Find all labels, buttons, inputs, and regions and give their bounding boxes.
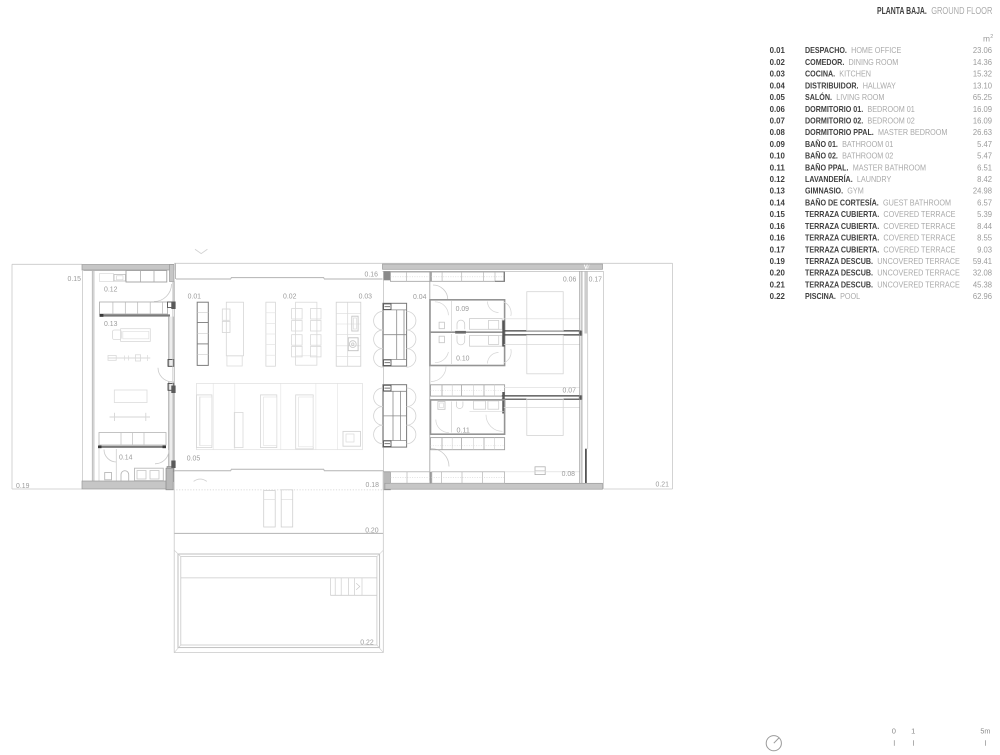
svg-text:0.11: 0.11 xyxy=(457,425,470,434)
svg-text:BATHROOM 01: BATHROOM 01 xyxy=(842,139,893,149)
svg-text:0.20: 0.20 xyxy=(770,268,786,278)
svg-text:6.57: 6.57 xyxy=(977,197,992,207)
svg-text:2: 2 xyxy=(990,34,993,40)
svg-text:BAÑO 02.: BAÑO 02. xyxy=(805,151,838,161)
svg-text:UNCOVERED TERRACE: UNCOVERED TERRACE xyxy=(877,279,960,289)
svg-text:COCINA.: COCINA. xyxy=(805,69,835,79)
svg-text:m: m xyxy=(983,34,990,43)
svg-text:KITCHEN: KITCHEN xyxy=(839,69,871,79)
svg-text:0.07: 0.07 xyxy=(563,386,576,395)
svg-text:PLANTA BAJA.: PLANTA BAJA. xyxy=(877,6,927,17)
svg-text:8.44: 8.44 xyxy=(977,221,992,231)
svg-text:TERRAZA CUBIERTA.: TERRAZA CUBIERTA. xyxy=(805,244,879,254)
svg-text:0.14: 0.14 xyxy=(770,197,786,207)
svg-text:0.06: 0.06 xyxy=(563,274,576,283)
svg-text:0.15: 0.15 xyxy=(770,209,786,219)
svg-text:0.16: 0.16 xyxy=(365,270,378,279)
svg-text:LAVANDERÍA.: LAVANDERÍA. xyxy=(805,173,853,184)
svg-text:0.19: 0.19 xyxy=(16,481,29,490)
svg-text:16.09: 16.09 xyxy=(973,104,992,114)
svg-text:5.47: 5.47 xyxy=(977,139,992,149)
svg-text:8.55: 8.55 xyxy=(977,233,992,243)
svg-text:GROUND FLOOR: GROUND FLOOR xyxy=(931,6,992,17)
svg-text:0.13: 0.13 xyxy=(104,319,117,328)
svg-text:0.16: 0.16 xyxy=(770,221,786,231)
svg-text:65.25: 65.25 xyxy=(973,92,992,102)
svg-text:TERRAZA CUBIERTA.: TERRAZA CUBIERTA. xyxy=(805,209,879,219)
svg-text:0.14: 0.14 xyxy=(119,452,132,461)
svg-text:0.18: 0.18 xyxy=(366,480,379,489)
svg-text:14.36: 14.36 xyxy=(973,57,992,67)
svg-text:BAÑO 01.: BAÑO 01. xyxy=(805,139,838,149)
svg-text:0.21: 0.21 xyxy=(770,279,786,289)
svg-text:UNCOVERED TERRACE: UNCOVERED TERRACE xyxy=(877,268,960,278)
svg-text:23.06: 23.06 xyxy=(973,45,992,55)
svg-text:COMEDOR.: COMEDOR. xyxy=(805,57,844,67)
svg-text:0.21: 0.21 xyxy=(656,480,669,489)
svg-text:SALÓN.: SALÓN. xyxy=(805,91,832,102)
svg-text:0.11: 0.11 xyxy=(770,162,786,172)
svg-text:0.17: 0.17 xyxy=(770,244,786,254)
svg-text:DISTRIBUIDOR.: DISTRIBUIDOR. xyxy=(805,80,859,90)
svg-text:TERRAZA DESCUB.: TERRAZA DESCUB. xyxy=(805,279,873,289)
svg-text:8.42: 8.42 xyxy=(977,174,992,184)
svg-text:DESPACHO.: DESPACHO. xyxy=(805,45,847,55)
svg-text:GYM: GYM xyxy=(847,186,864,196)
svg-text:BAÑO PPAL.: BAÑO PPAL. xyxy=(805,162,849,172)
svg-text:5.47: 5.47 xyxy=(977,151,992,161)
svg-text:0.08: 0.08 xyxy=(562,469,575,478)
svg-text:0.06: 0.06 xyxy=(770,104,786,114)
svg-text:COVERED TERRACE: COVERED TERRACE xyxy=(883,233,955,243)
svg-text:0.05: 0.05 xyxy=(770,92,786,102)
svg-text:26.63: 26.63 xyxy=(973,127,992,137)
svg-text:1: 1 xyxy=(911,727,915,736)
svg-text:13.10: 13.10 xyxy=(973,80,992,90)
svg-text:MASTER BEDROOM: MASTER BEDROOM xyxy=(878,127,947,137)
svg-text:0.03: 0.03 xyxy=(359,292,372,301)
svg-text:32.08: 32.08 xyxy=(973,268,992,278)
svg-text:16.09: 16.09 xyxy=(973,115,992,125)
svg-text:5m: 5m xyxy=(980,727,990,736)
svg-text:0.15: 0.15 xyxy=(68,274,81,283)
svg-text:24.98: 24.98 xyxy=(973,186,992,196)
svg-text:0.09: 0.09 xyxy=(456,304,469,313)
svg-text:0.05: 0.05 xyxy=(187,454,200,463)
svg-text:0.12: 0.12 xyxy=(770,174,786,184)
svg-text:POOL: POOL xyxy=(840,291,860,301)
svg-text:59.41: 59.41 xyxy=(973,256,992,266)
svg-text:DORMITORIO 02.: DORMITORIO 02. xyxy=(805,115,863,125)
svg-text:HOME OFFICE: HOME OFFICE xyxy=(851,45,902,55)
svg-text:LAUNDRY: LAUNDRY xyxy=(857,174,892,184)
svg-text:15.32: 15.32 xyxy=(973,69,992,79)
svg-text:BEDROOM 02: BEDROOM 02 xyxy=(867,115,915,125)
svg-text:DORMITORIO PPAL.: DORMITORIO PPAL. xyxy=(805,127,874,137)
svg-text:0.01: 0.01 xyxy=(770,45,786,55)
svg-text:0.01: 0.01 xyxy=(188,292,201,301)
svg-text:0.02: 0.02 xyxy=(770,57,786,67)
svg-text:TERRAZA CUBIERTA.: TERRAZA CUBIERTA. xyxy=(805,221,879,231)
svg-text:0.19: 0.19 xyxy=(770,256,786,266)
svg-text:PISCINA.: PISCINA. xyxy=(805,291,836,301)
svg-text:UNCOVERED TERRACE: UNCOVERED TERRACE xyxy=(877,256,960,266)
svg-text:COVERED TERRACE: COVERED TERRACE xyxy=(883,209,955,219)
svg-text:COVERED TERRACE: COVERED TERRACE xyxy=(883,221,955,231)
svg-text:45.38: 45.38 xyxy=(973,279,992,289)
svg-text:BATHROOM 02: BATHROOM 02 xyxy=(842,151,893,161)
svg-text:0.22: 0.22 xyxy=(770,291,786,301)
svg-text:HALLWAY: HALLWAY xyxy=(863,80,897,90)
svg-text:0.17: 0.17 xyxy=(589,274,602,283)
svg-text:0.04: 0.04 xyxy=(770,80,786,90)
svg-text:LIVING ROOM: LIVING ROOM xyxy=(836,92,884,102)
svg-text:0.04: 0.04 xyxy=(413,292,426,301)
svg-text:0.08: 0.08 xyxy=(770,127,786,137)
svg-text:TERRAZA DESCUB.: TERRAZA DESCUB. xyxy=(805,256,873,266)
svg-text:9.03: 9.03 xyxy=(977,244,992,254)
svg-text:0.16: 0.16 xyxy=(770,233,786,243)
svg-text:0.09: 0.09 xyxy=(770,139,786,149)
svg-text:62.96: 62.96 xyxy=(973,291,992,301)
svg-text:GIMNASIO.: GIMNASIO. xyxy=(805,186,843,196)
svg-text:0.02: 0.02 xyxy=(283,292,296,301)
svg-text:COVERED TERRACE: COVERED TERRACE xyxy=(883,244,955,254)
svg-text:6.51: 6.51 xyxy=(977,162,992,172)
svg-text:MASTER BATHROOM: MASTER BATHROOM xyxy=(853,162,926,172)
svg-text:0: 0 xyxy=(892,727,896,736)
svg-text:0.13: 0.13 xyxy=(770,186,786,196)
svg-text:0.10: 0.10 xyxy=(456,354,469,363)
svg-text:0.20: 0.20 xyxy=(365,526,378,535)
svg-text:0.07: 0.07 xyxy=(770,115,786,125)
svg-text:0.12: 0.12 xyxy=(104,284,117,293)
svg-text:TERRAZA CUBIERTA.: TERRAZA CUBIERTA. xyxy=(805,233,879,243)
svg-text:0.10: 0.10 xyxy=(770,151,786,161)
svg-text:5.39: 5.39 xyxy=(977,209,992,219)
svg-text:DINING ROOM: DINING ROOM xyxy=(849,57,899,67)
svg-text:GUEST BATHROOM: GUEST BATHROOM xyxy=(883,197,951,207)
svg-text:DORMITORIO 01.: DORMITORIO 01. xyxy=(805,104,863,114)
svg-text:BEDROOM 01: BEDROOM 01 xyxy=(867,104,915,114)
svg-text:0.03: 0.03 xyxy=(770,69,786,79)
svg-text:TERRAZA DESCUB.: TERRAZA DESCUB. xyxy=(805,268,873,278)
svg-text:0.22: 0.22 xyxy=(360,638,373,647)
svg-text:BAÑO DE CORTESÍA.: BAÑO DE CORTESÍA. xyxy=(805,196,879,207)
